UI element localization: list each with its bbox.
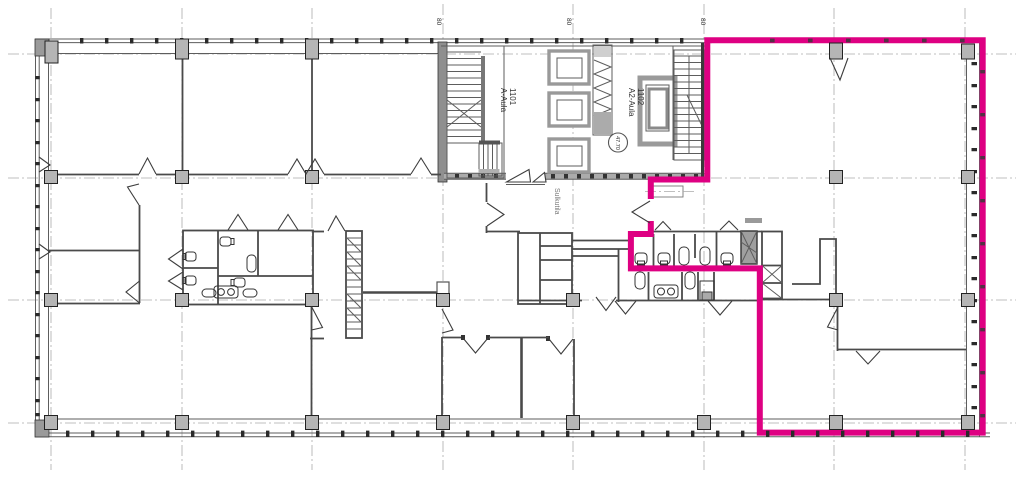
svg-text:Sulkutila: Sulkutila [553,188,560,215]
svg-text:80: 80 [565,18,572,26]
svg-text:1101: 1101 [508,88,517,106]
svg-text:1102: 1102 [636,88,645,106]
svg-text:47.70: 47.70 [614,136,620,150]
svg-text:80: 80 [435,18,442,26]
svg-text:80: 80 [699,18,706,26]
svg-text:A-Aula: A-Aula [499,88,508,113]
svg-text:A2-Aula: A2-Aula [627,88,636,117]
